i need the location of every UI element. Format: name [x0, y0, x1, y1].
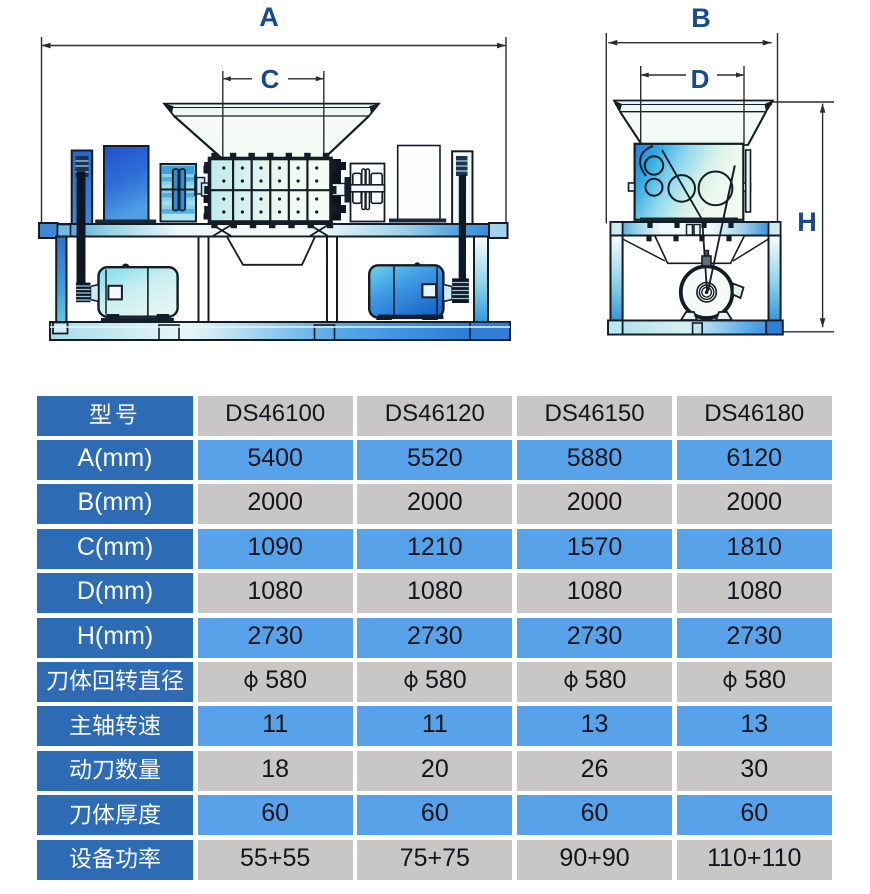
svg-text:H: H [797, 207, 817, 237]
svg-text:D: D [691, 64, 710, 94]
svg-text:C: C [261, 64, 280, 94]
svg-text:A: A [259, 2, 279, 32]
svg-text:B: B [691, 3, 711, 33]
